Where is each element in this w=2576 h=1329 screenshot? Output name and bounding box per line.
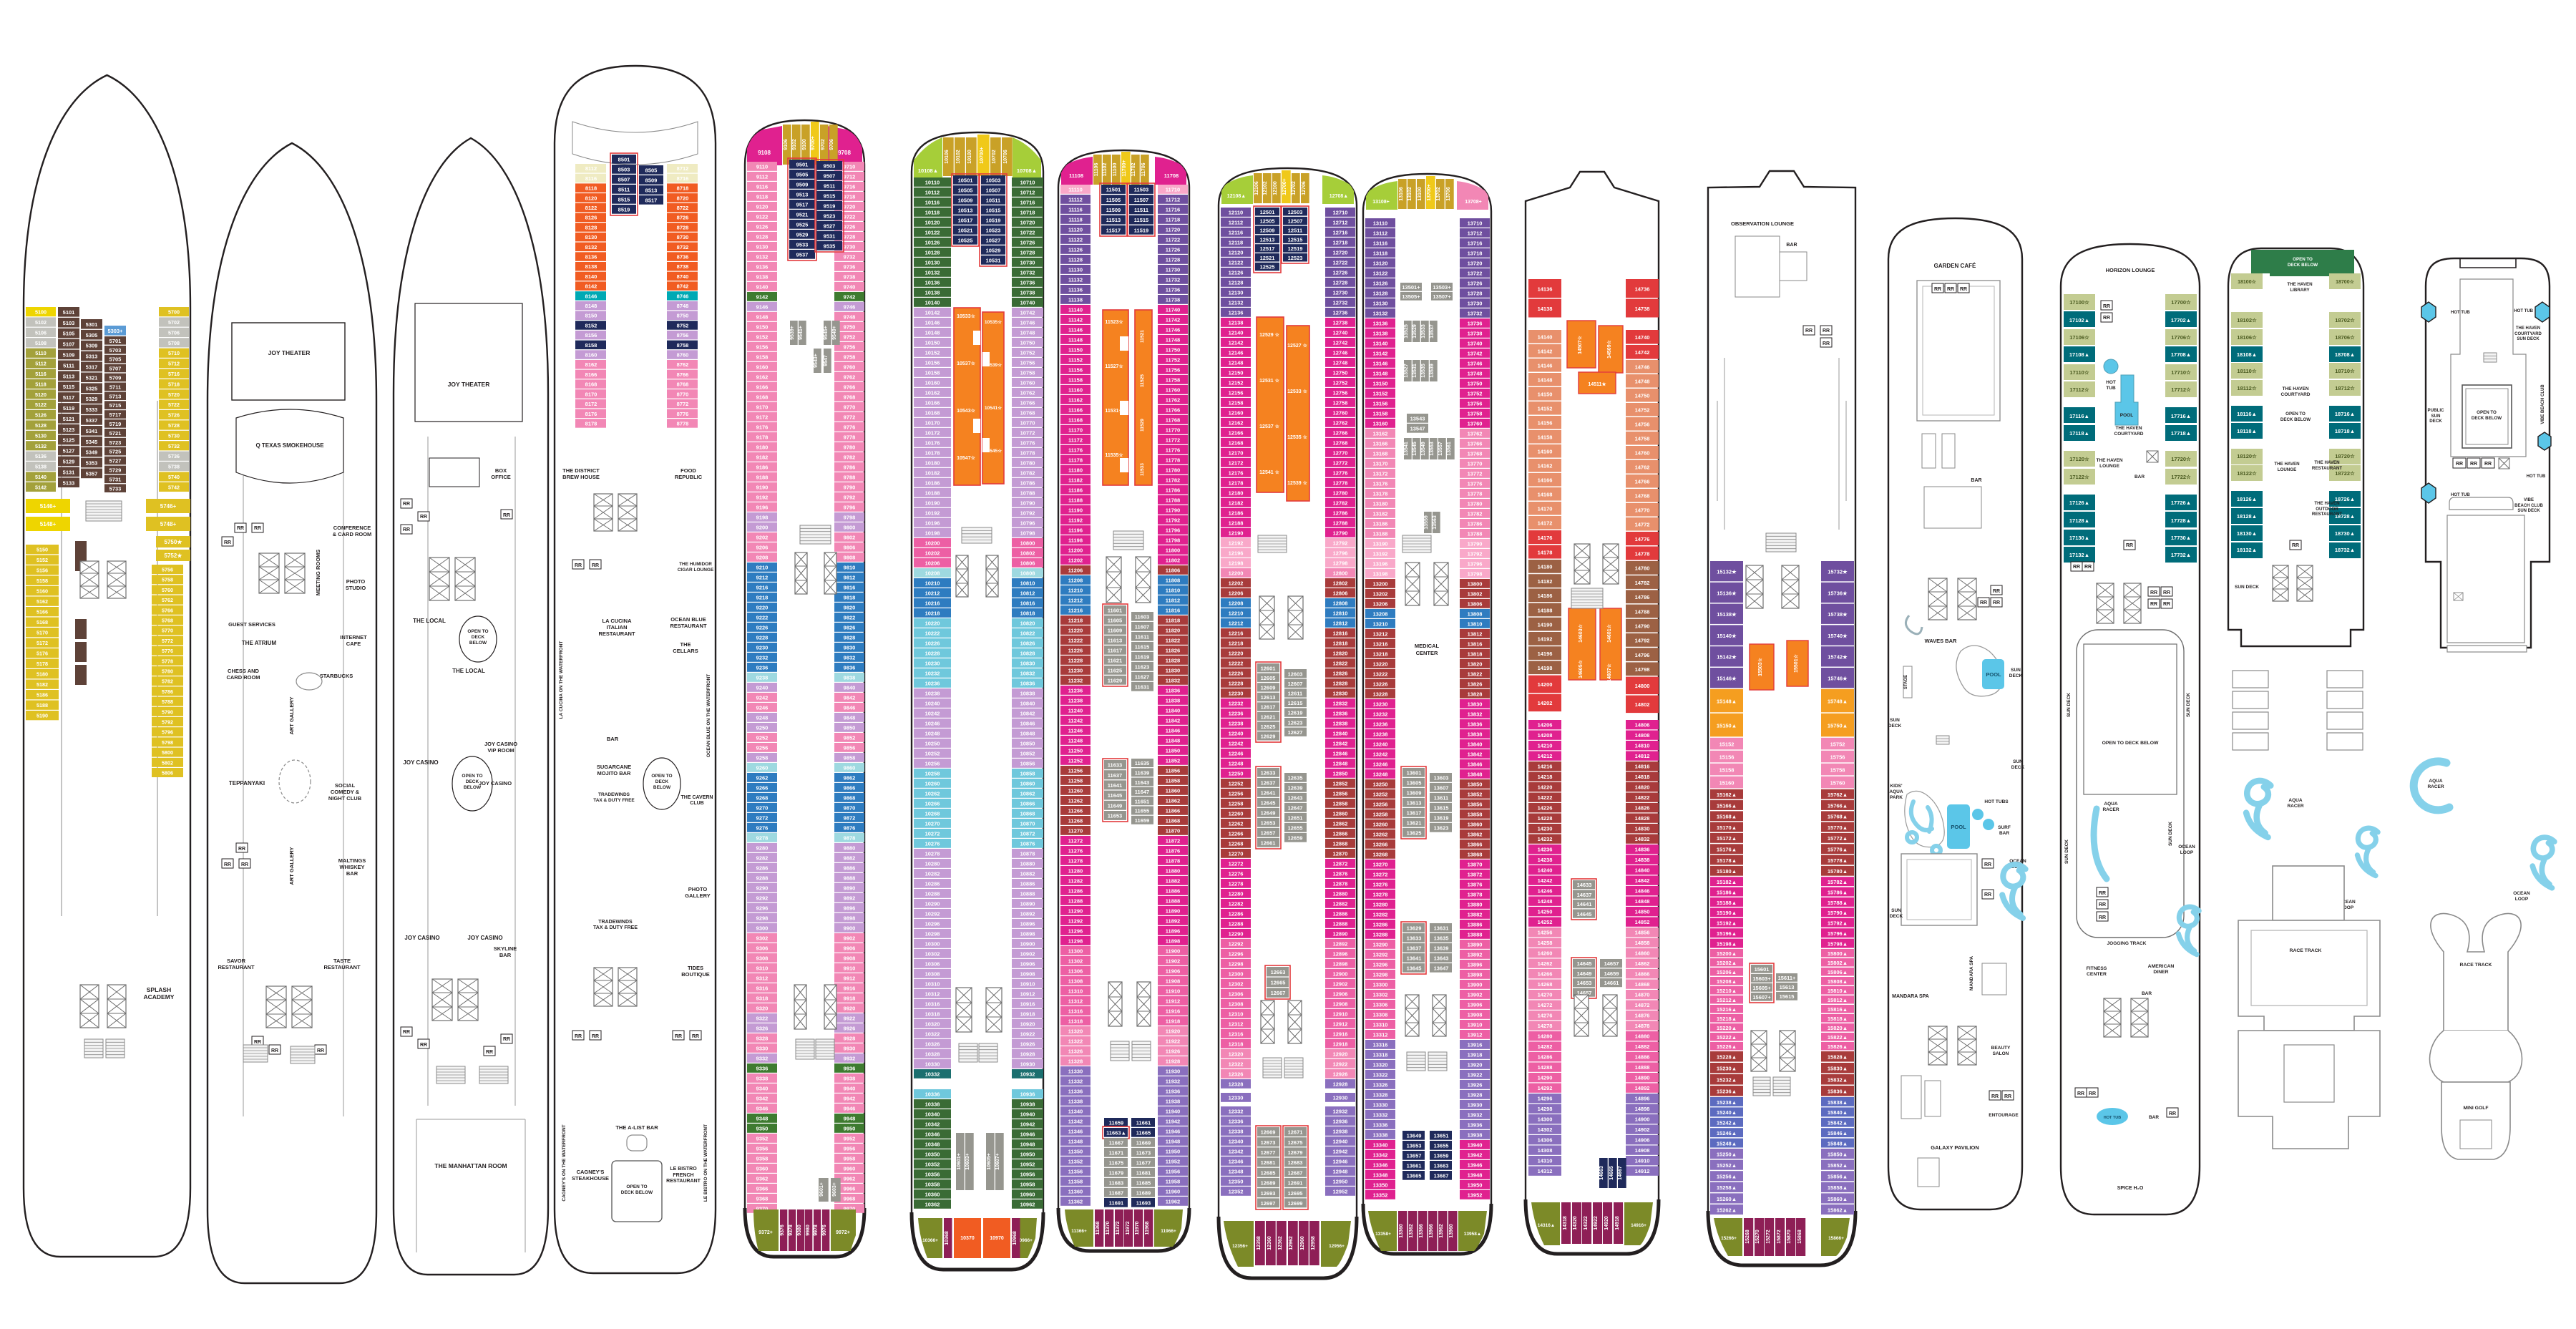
svg-text:11228: 11228	[1068, 657, 1083, 663]
svg-text:10936: 10936	[1020, 1091, 1035, 1097]
svg-text:11308: 11308	[1068, 978, 1083, 984]
svg-text:10230: 10230	[925, 660, 940, 666]
svg-text:OPEN TO: OPEN TO	[626, 1184, 647, 1189]
svg-text:12188: 12188	[1229, 520, 1244, 526]
svg-text:11683: 11683	[1109, 1180, 1123, 1187]
svg-text:THE MANHATTAN ROOM: THE MANHATTAN ROOM	[434, 1162, 507, 1169]
svg-text:10960: 10960	[1020, 1191, 1035, 1197]
svg-text:11689: 11689	[1136, 1190, 1151, 1197]
svg-text:13932: 13932	[1468, 1111, 1483, 1118]
svg-text:12352: 12352	[1229, 1188, 1244, 1194]
svg-text:15156: 15156	[1719, 754, 1735, 760]
svg-text:5131: 5131	[63, 469, 75, 475]
svg-text:9836: 9836	[844, 664, 856, 671]
svg-text:11182: 11182	[1068, 477, 1083, 483]
svg-text:5142: 5142	[35, 484, 47, 490]
svg-text:13158: 13158	[1373, 410, 1388, 417]
svg-text:14190: 14190	[1538, 622, 1553, 628]
svg-text:TRADEWINDS: TRADEWINDS	[598, 920, 633, 925]
svg-text:11669: 11669	[1136, 1140, 1151, 1147]
svg-text:9206: 9206	[756, 544, 769, 550]
svg-text:BAR: BAR	[346, 870, 358, 877]
svg-text:12830: 12830	[1333, 690, 1348, 696]
svg-text:10830: 10830	[1020, 660, 1035, 666]
svg-text:13537: 13537	[1430, 324, 1435, 339]
svg-text:9318: 9318	[756, 995, 769, 1001]
svg-text:5792: 5792	[162, 719, 173, 726]
svg-text:13790: 13790	[1468, 540, 1483, 547]
svg-text:5715: 5715	[109, 402, 122, 409]
svg-text:12732: 12732	[1333, 299, 1348, 306]
svg-text:14820: 14820	[1635, 784, 1650, 791]
svg-text:13150: 13150	[1373, 380, 1388, 386]
svg-text:11639: 11639	[1135, 770, 1149, 777]
svg-text:5182: 5182	[36, 681, 48, 688]
svg-text:11641: 11641	[1108, 782, 1122, 789]
svg-text:10860: 10860	[1020, 780, 1035, 787]
svg-text:5107: 5107	[63, 341, 75, 348]
svg-text:8728: 8728	[677, 224, 689, 230]
svg-text:11720: 11720	[1166, 226, 1180, 233]
svg-text:OCEAN BLUE: OCEAN BLUE	[670, 616, 706, 623]
svg-text:14248: 14248	[1538, 898, 1553, 905]
svg-text:14768: 14768	[1635, 493, 1650, 500]
svg-text:9286: 9286	[756, 865, 769, 871]
svg-text:11806: 11806	[1166, 567, 1180, 573]
svg-text:11268: 11268	[1068, 817, 1083, 824]
svg-text:13268: 13268	[1373, 851, 1388, 857]
svg-text:10788: 10788	[1020, 490, 1035, 496]
svg-text:14605☆: 14605☆	[1578, 659, 1584, 678]
svg-text:12958: 12958	[1311, 1236, 1316, 1250]
svg-text:5752★: 5752★	[165, 552, 183, 559]
svg-text:9738: 9738	[844, 273, 856, 280]
svg-text:10812: 10812	[1020, 590, 1035, 596]
svg-text:9503: 9503	[824, 163, 836, 170]
svg-text:10310: 10310	[925, 980, 940, 987]
svg-text:11272: 11272	[1068, 837, 1083, 844]
svg-text:RR: RR	[2103, 316, 2110, 321]
svg-text:9348: 9348	[756, 1115, 769, 1121]
svg-text:13168: 13168	[1373, 450, 1388, 457]
svg-text:11625: 11625	[1108, 668, 1122, 674]
svg-text:8730: 8730	[677, 234, 689, 240]
svg-text:9862: 9862	[844, 774, 856, 781]
svg-text:13878: 13878	[1468, 891, 1483, 897]
svg-text:14146: 14146	[1538, 363, 1553, 369]
svg-text:8750: 8750	[677, 313, 689, 319]
svg-text:15738★: 15738★	[1828, 611, 1848, 618]
svg-text:13756: 13756	[1468, 400, 1483, 407]
svg-text:12693: 12693	[1261, 1190, 1276, 1197]
svg-text:14906: 14906	[1635, 1137, 1650, 1144]
svg-text:5190: 5190	[36, 713, 48, 719]
svg-text:5700: 5700	[168, 309, 180, 316]
svg-text:13852: 13852	[1468, 791, 1483, 797]
svg-text:RR: RR	[1993, 600, 2000, 605]
svg-text:5186: 5186	[36, 692, 48, 698]
svg-text:14188: 14188	[1538, 607, 1553, 613]
svg-text:5703: 5703	[109, 347, 122, 354]
svg-text:8170: 8170	[585, 391, 597, 397]
svg-text:9188: 9188	[756, 474, 769, 480]
svg-text:9376: 9376	[780, 1225, 785, 1236]
svg-text:12639: 12639	[1288, 785, 1303, 792]
svg-text:12677: 12677	[1261, 1149, 1276, 1156]
svg-text:PHOTO: PHOTO	[688, 886, 708, 892]
svg-text:8112: 8112	[585, 165, 597, 172]
svg-text:RR: RR	[592, 1034, 599, 1039]
svg-text:14896: 14896	[1635, 1096, 1650, 1102]
svg-text:14792: 14792	[1635, 638, 1650, 644]
svg-text:10332: 10332	[925, 1071, 940, 1077]
svg-text:9519: 9519	[824, 203, 836, 210]
svg-text:13752: 13752	[1468, 390, 1483, 396]
svg-text:10940: 10940	[1020, 1111, 1035, 1117]
svg-text:CLUB: CLUB	[690, 801, 703, 806]
svg-text:9868: 9868	[844, 794, 856, 801]
svg-text:13248: 13248	[1373, 771, 1388, 777]
svg-text:12126: 12126	[1229, 269, 1244, 276]
svg-text:10128: 10128	[925, 249, 940, 255]
svg-text:9517: 9517	[796, 202, 809, 208]
svg-text:8760: 8760	[677, 352, 689, 359]
svg-text:13563: 13563	[1433, 515, 1438, 530]
svg-text:10236: 10236	[925, 680, 940, 686]
svg-text:11740: 11740	[1166, 306, 1180, 313]
svg-text:SUN DECK: SUN DECK	[2235, 585, 2259, 590]
svg-text:11708: 11708	[1164, 172, 1179, 179]
svg-text:11661: 11661	[1136, 1120, 1151, 1126]
svg-text:12812: 12812	[1333, 620, 1348, 626]
svg-text:13202: 13202	[1373, 590, 1388, 597]
svg-text:12521: 12521	[1260, 255, 1275, 261]
svg-text:11533: 11533	[1140, 463, 1145, 476]
svg-text:10515: 10515	[986, 208, 1001, 214]
svg-text:10808: 10808	[1020, 570, 1035, 576]
svg-text:12758: 12758	[1333, 399, 1348, 406]
svg-text:10886: 10886	[1020, 880, 1035, 887]
svg-text:12232: 12232	[1229, 700, 1244, 706]
svg-text:13712: 13712	[1468, 230, 1483, 236]
svg-text:5140: 5140	[35, 474, 47, 480]
svg-text:13609: 13609	[1407, 790, 1422, 797]
svg-text:11509: 11509	[1106, 207, 1121, 213]
svg-text:10766: 10766	[1020, 399, 1035, 406]
svg-text:12746: 12746	[1333, 349, 1348, 356]
svg-text:CAFE: CAFE	[346, 641, 361, 647]
svg-text:10226: 10226	[925, 640, 940, 646]
svg-text:15750▲: 15750▲	[1828, 722, 1848, 729]
svg-text:5710: 5710	[168, 350, 180, 356]
svg-text:13116: 13116	[1373, 240, 1387, 246]
svg-text:11956: 11956	[1166, 1168, 1180, 1174]
svg-text:11766: 11766	[1166, 407, 1180, 413]
svg-text:12940: 12940	[1333, 1138, 1348, 1144]
svg-text:10292: 10292	[925, 910, 940, 917]
svg-text:13633: 13633	[1407, 935, 1422, 942]
svg-text:11529: 11529	[1140, 419, 1145, 432]
svg-text:10968: 10968	[1013, 1231, 1018, 1245]
svg-text:15850▲: 15850▲	[1828, 1151, 1848, 1157]
svg-text:18118▲: 18118▲	[2237, 428, 2257, 434]
svg-text:8712: 8712	[677, 165, 689, 172]
svg-text:RR: RR	[1984, 892, 1991, 897]
svg-text:13740: 13740	[1468, 340, 1483, 346]
svg-text:11511: 11511	[1134, 207, 1148, 213]
svg-text:RACER: RACER	[2427, 784, 2444, 789]
svg-text:14770: 14770	[1635, 507, 1650, 514]
svg-text:12128: 12128	[1229, 279, 1244, 286]
svg-text:RESTAURANT: RESTAURANT	[2312, 466, 2342, 471]
svg-text:12270: 12270	[1229, 850, 1244, 857]
svg-text:12846: 12846	[1333, 750, 1348, 756]
svg-text:12700+: 12700+	[1282, 178, 1287, 195]
svg-text:11838: 11838	[1166, 697, 1180, 704]
svg-text:15770▲: 15770▲	[1828, 824, 1848, 831]
svg-text:10806: 10806	[1020, 560, 1035, 566]
svg-text:9212: 9212	[756, 574, 769, 580]
svg-text:10870: 10870	[1020, 820, 1035, 827]
svg-text:13216: 13216	[1373, 641, 1388, 647]
svg-text:14665: 14665	[1609, 1166, 1614, 1180]
svg-text:5723: 5723	[109, 439, 122, 446]
svg-text:12262: 12262	[1229, 820, 1244, 827]
svg-text:14908: 14908	[1635, 1147, 1650, 1154]
svg-text:10710: 10710	[1020, 179, 1035, 185]
svg-text:9768: 9768	[844, 394, 856, 400]
svg-text:DECK: DECK	[2429, 419, 2442, 424]
svg-text:15832▲: 15832▲	[1828, 1077, 1848, 1084]
svg-text:9966: 9966	[844, 1185, 856, 1192]
svg-text:COURTYARD: COURTYARD	[2114, 432, 2144, 437]
svg-text:14192: 14192	[1538, 636, 1553, 643]
svg-text:14603☆: 14603☆	[1578, 623, 1584, 642]
svg-text:14156: 14156	[1538, 420, 1553, 427]
svg-text:THE HAVEN: THE HAVEN	[2282, 386, 2308, 391]
svg-text:12852: 12852	[1333, 780, 1348, 787]
svg-text:14856: 14856	[1635, 930, 1650, 936]
svg-text:11100: 11100	[1113, 163, 1118, 177]
svg-text:9808: 9808	[844, 554, 856, 560]
svg-text:POOL: POOL	[2120, 413, 2133, 418]
svg-text:9246: 9246	[756, 704, 769, 711]
svg-text:9186: 9186	[756, 464, 769, 470]
svg-text:11252: 11252	[1068, 757, 1083, 764]
svg-text:17102▲: 17102▲	[2069, 317, 2089, 323]
svg-text:5770: 5770	[162, 628, 173, 634]
svg-text:THE DISTRICT: THE DISTRICT	[562, 467, 600, 474]
svg-text:9312: 9312	[756, 975, 769, 981]
svg-text:14206: 14206	[1538, 722, 1553, 729]
svg-text:5717: 5717	[109, 412, 122, 418]
svg-text:13922: 13922	[1468, 1071, 1483, 1078]
svg-text:13846: 13846	[1468, 761, 1483, 767]
svg-text:14509☆: 14509☆	[1606, 339, 1612, 358]
svg-text:15198▲: 15198▲	[1717, 940, 1737, 947]
svg-text:12942: 12942	[1333, 1148, 1348, 1154]
svg-text:INTERNET: INTERNET	[340, 634, 367, 641]
svg-text:8176: 8176	[585, 411, 597, 417]
svg-text:9958: 9958	[844, 1155, 856, 1162]
svg-text:9826: 9826	[844, 624, 856, 631]
svg-text:11768: 11768	[1166, 417, 1180, 423]
svg-text:11726: 11726	[1166, 246, 1180, 253]
svg-text:15806▲: 15806▲	[1828, 969, 1848, 975]
svg-text:13635: 13635	[1434, 935, 1449, 942]
svg-text:OCEAN BLUE ON THE WATERFRONT: OCEAN BLUE ON THE WATERFRONT	[706, 674, 711, 758]
svg-text:12609: 12609	[1261, 685, 1276, 691]
svg-text:8509: 8509	[645, 177, 658, 184]
svg-text:15792▲: 15792▲	[1828, 920, 1848, 927]
svg-text:9350: 9350	[756, 1125, 769, 1131]
svg-text:9740: 9740	[844, 283, 856, 290]
svg-text:11198: 11198	[1068, 537, 1083, 543]
svg-text:15250▲: 15250▲	[1717, 1151, 1737, 1157]
svg-text:9322: 9322	[756, 1015, 769, 1021]
svg-text:12158: 12158	[1229, 399, 1244, 406]
svg-text:8758: 8758	[677, 342, 689, 349]
svg-text:AQUA: AQUA	[2288, 798, 2302, 803]
svg-text:12541 ☆: 12541 ☆	[1259, 469, 1279, 475]
svg-text:5170: 5170	[36, 630, 48, 636]
svg-text:SUN DECK: SUN DECK	[2517, 509, 2540, 513]
svg-text:9718: 9718	[844, 193, 856, 200]
svg-text:13625: 13625	[1407, 830, 1422, 837]
svg-text:11362: 11362	[1068, 1198, 1083, 1204]
svg-text:15132★: 15132★	[1717, 569, 1737, 575]
svg-text:13505+: 13505+	[1402, 293, 1420, 300]
svg-text:14653: 14653	[1577, 980, 1592, 986]
svg-text:12519: 12519	[1288, 245, 1303, 252]
svg-text:18702☆: 18702☆	[2335, 317, 2356, 323]
svg-text:12772: 12772	[1333, 459, 1348, 466]
svg-text:14796: 14796	[1635, 652, 1650, 658]
svg-text:5746+: 5746+	[160, 503, 177, 510]
svg-text:17722☆: 17722☆	[2171, 474, 2192, 480]
svg-text:OPEN TO: OPEN TO	[462, 774, 482, 779]
svg-text:13770: 13770	[1468, 460, 1483, 467]
svg-text:10228: 10228	[925, 650, 940, 656]
svg-text:12140: 12140	[1229, 329, 1244, 336]
svg-text:17130▲: 17130▲	[2069, 535, 2089, 541]
svg-text:12890: 12890	[1333, 930, 1348, 937]
svg-text:5313: 5313	[86, 354, 98, 360]
svg-text:10358: 10358	[925, 1181, 940, 1187]
svg-text:13122: 13122	[1373, 270, 1388, 276]
svg-text:11898: 11898	[1166, 938, 1180, 944]
svg-text:10840: 10840	[1020, 700, 1035, 706]
svg-text:10846: 10846	[1020, 720, 1035, 726]
svg-text:SAVOR: SAVOR	[227, 958, 246, 964]
svg-text:12200: 12200	[1229, 570, 1244, 576]
svg-text:10730: 10730	[1020, 259, 1035, 266]
svg-text:14866: 14866	[1635, 971, 1650, 978]
svg-text:RR: RR	[1960, 287, 1967, 292]
svg-text:13535: 13535	[1421, 364, 1426, 378]
svg-text:14649: 14649	[1577, 970, 1592, 977]
svg-text:MEETING ROOMS: MEETING ROOMS	[315, 550, 321, 596]
svg-text:8168: 8168	[585, 381, 597, 388]
svg-text:10302: 10302	[925, 950, 940, 957]
svg-text:10270: 10270	[925, 820, 940, 827]
svg-text:RR: RR	[2099, 891, 2106, 896]
svg-text:5111: 5111	[63, 362, 74, 369]
svg-text:11892: 11892	[1166, 917, 1180, 924]
svg-text:14150: 14150	[1538, 391, 1553, 398]
svg-text:RR: RR	[575, 563, 582, 568]
svg-text:RR: RR	[254, 1040, 261, 1045]
svg-text:11940: 11940	[1166, 1108, 1180, 1114]
svg-text:12272: 12272	[1229, 860, 1244, 867]
svg-text:LOOP: LOOP	[2515, 897, 2529, 902]
svg-text:13882: 13882	[1468, 911, 1483, 917]
svg-text:10938: 10938	[1020, 1101, 1035, 1107]
svg-text:10186: 10186	[925, 479, 940, 486]
svg-text:10140: 10140	[925, 299, 940, 306]
svg-text:12619: 12619	[1288, 710, 1303, 716]
svg-text:12712: 12712	[1333, 219, 1348, 225]
svg-text:9336: 9336	[756, 1065, 769, 1071]
svg-text:11942: 11942	[1166, 1118, 1180, 1124]
svg-text:13960: 13960	[1449, 1224, 1454, 1238]
svg-text:10216: 10216	[925, 600, 940, 606]
svg-text:WHISKEY: WHISKEY	[339, 864, 364, 870]
svg-text:10250: 10250	[925, 740, 940, 746]
svg-text:9858: 9858	[844, 754, 856, 761]
svg-text:14198: 14198	[1538, 665, 1553, 671]
svg-text:BOX: BOX	[495, 467, 507, 474]
svg-text:12681: 12681	[1261, 1159, 1276, 1166]
svg-text:10736: 10736	[1020, 279, 1035, 286]
svg-text:9342: 9342	[756, 1095, 769, 1101]
svg-text:5109: 5109	[63, 352, 75, 359]
svg-text:9750: 9750	[844, 323, 856, 330]
svg-text:12505: 12505	[1260, 218, 1275, 225]
svg-text:GALAXY PAVILION: GALAXY PAVILION	[1931, 1144, 1979, 1151]
svg-text:11631: 11631	[1135, 684, 1149, 691]
svg-text:BAR: BAR	[2149, 1115, 2159, 1120]
svg-text:15838▲: 15838▲	[1828, 1099, 1848, 1106]
svg-text:12862: 12862	[1333, 820, 1348, 827]
svg-text:5117: 5117	[63, 394, 74, 401]
svg-text:10148: 10148	[925, 329, 940, 336]
svg-text:TIDES: TIDES	[688, 965, 703, 971]
svg-text:11706: 11706	[1141, 162, 1146, 176]
svg-text:BEACH CLUB: BEACH CLUB	[2514, 504, 2543, 508]
svg-text:15142★: 15142★	[1717, 654, 1737, 661]
svg-text:10262: 10262	[925, 790, 940, 797]
svg-text:13282: 13282	[1373, 911, 1388, 917]
svg-text:14838: 14838	[1635, 857, 1650, 863]
svg-text:AMERICAN: AMERICAN	[2148, 964, 2175, 969]
svg-text:14778: 14778	[1635, 550, 1650, 557]
svg-text:12326: 12326	[1229, 1071, 1244, 1077]
svg-text:9842: 9842	[844, 694, 856, 701]
svg-text:11786: 11786	[1166, 487, 1180, 493]
svg-text:14306: 14306	[1538, 1137, 1553, 1144]
svg-text:9228: 9228	[756, 634, 769, 641]
svg-text:9872: 9872	[844, 814, 856, 821]
svg-text:12292: 12292	[1229, 940, 1244, 947]
svg-text:11318: 11318	[1068, 1018, 1083, 1024]
svg-text:10272: 10272	[925, 830, 940, 837]
svg-text:9866: 9866	[844, 784, 856, 791]
svg-text:5345: 5345	[86, 439, 98, 445]
svg-text:12180: 12180	[1229, 490, 1244, 496]
svg-text:13908: 13908	[1468, 1011, 1483, 1018]
svg-text:11643: 11643	[1135, 779, 1149, 786]
